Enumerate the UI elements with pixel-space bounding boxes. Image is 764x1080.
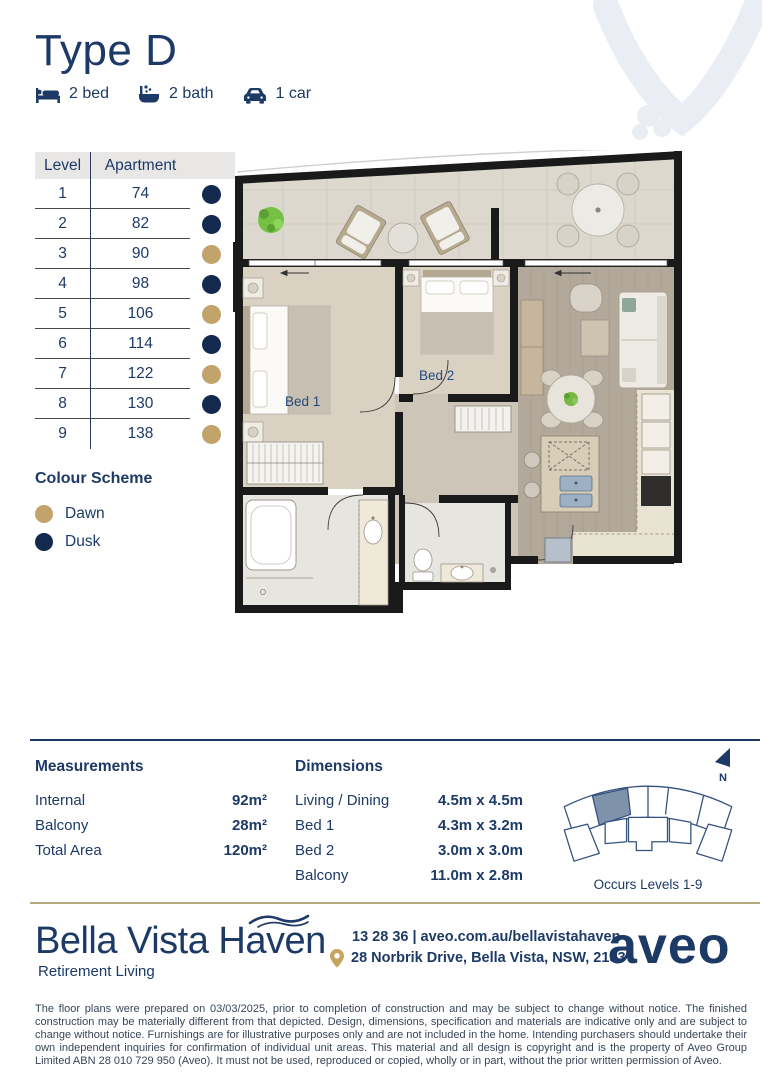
colour-scheme-title: Colour Scheme	[35, 470, 152, 488]
scheme-dot	[202, 275, 221, 294]
level-header: Level	[35, 152, 90, 179]
floor-plan: Bed 1 Bed 2	[233, 150, 684, 628]
measurement-label: Total Area	[35, 838, 102, 863]
address-line: 28 Norbrik Drive, Bella Vista, NSW, 2153	[330, 947, 626, 969]
scheme-dot	[202, 335, 221, 354]
dimension-value: 4.3m x 3.2m	[438, 813, 523, 838]
dimension-row: Bed 14.3m x 3.2m	[295, 813, 523, 838]
feature-baths-label: 2 bath	[169, 85, 213, 103]
apartment-cell: 114	[90, 329, 190, 359]
table-row: 498	[35, 269, 235, 299]
apartment-cell: 98	[90, 269, 190, 299]
feature-beds: 2 bed	[35, 85, 109, 104]
dimension-label: Bed 2	[295, 838, 334, 863]
apartment-cell: 90	[90, 239, 190, 269]
level-cell: 9	[35, 419, 90, 449]
dimension-label: Balcony	[295, 863, 348, 888]
dimension-value: 4.5m x 4.5m	[438, 788, 523, 813]
level-cell: 7	[35, 359, 90, 389]
address-text: 28 Norbrik Drive, Bella Vista, NSW, 2153	[351, 947, 626, 969]
scheme-dot	[202, 305, 221, 324]
level-cell: 4	[35, 269, 90, 299]
measurement-value: 28m²	[232, 813, 267, 838]
level-cell: 3	[35, 239, 90, 269]
apartment-header: Apartment	[90, 152, 190, 179]
apartment-cell: 130	[90, 389, 190, 419]
level-cell: 8	[35, 389, 90, 419]
level-cell: 6	[35, 329, 90, 359]
brand-name: Bella Vista Haven	[35, 920, 326, 963]
feature-cars: 1 car	[242, 85, 312, 104]
apartment-cell: 106	[90, 299, 190, 329]
aveo-logo: aveo	[608, 916, 731, 976]
colour-scheme-legend: Colour Scheme Dawn Dusk	[35, 470, 152, 556]
table-row: 5106	[35, 299, 235, 329]
table-row: 282	[35, 209, 235, 239]
level-apartment-table: Level Apartment 174 282 390 498 5106 611…	[35, 152, 235, 449]
brand-tagline: Retirement Living	[38, 963, 155, 980]
dawn-label: Dawn	[65, 505, 105, 523]
north-indicator: N	[710, 748, 736, 783]
table-header-row: Level Apartment	[35, 152, 235, 179]
apartment-cell: 74	[90, 179, 190, 209]
scheme-dot	[202, 245, 221, 264]
dawn-dot	[35, 505, 53, 523]
feature-beds-label: 2 bed	[69, 85, 109, 103]
contact-block: 13 28 36 | aveo.com.au/bellavistahaven 2…	[330, 927, 626, 969]
legend-item-dusk: Dusk	[35, 528, 152, 556]
scheme-dot	[202, 395, 221, 414]
measurements-section: Measurements Internal92m² Balcony28m² To…	[35, 758, 267, 863]
dusk-dot	[35, 533, 53, 551]
feature-baths: 2 bath	[137, 84, 213, 104]
apartment-cell: 82	[90, 209, 190, 239]
disclaimer-text: The floor plans were prepared on 03/03/2…	[35, 1003, 747, 1068]
divider-gold	[30, 902, 760, 904]
dimension-value: 3.0m x 3.0m	[438, 838, 523, 863]
table-row: 6114	[35, 329, 235, 359]
dimension-row: Balcony11.0m x 2.8m	[295, 863, 523, 888]
table-row: 8130	[35, 389, 235, 419]
measurement-row: Balcony28m²	[35, 813, 267, 838]
dusk-label: Dusk	[65, 533, 100, 551]
table-row: 9138	[35, 419, 235, 449]
bed2-label: Bed 2	[419, 368, 454, 383]
phone-and-web: 13 28 36 | aveo.com.au/bellavistahaven	[352, 927, 626, 947]
scheme-dot	[202, 215, 221, 234]
measurement-row: Internal92m²	[35, 788, 267, 813]
location-pin-icon	[330, 949, 344, 968]
level-cell: 2	[35, 209, 90, 239]
dimension-label: Living / Dining	[295, 788, 389, 813]
bed-icon	[35, 85, 61, 104]
apartment-cell: 138	[90, 419, 190, 449]
divider-navy	[30, 739, 760, 741]
table-row: 390	[35, 239, 235, 269]
dimension-row: Bed 23.0m x 3.0m	[295, 838, 523, 863]
table-row: 7122	[35, 359, 235, 389]
dimensions-section: Dimensions Living / Dining4.5m x 4.5m Be…	[295, 758, 523, 888]
measurements-title: Measurements	[35, 758, 267, 776]
level-cell: 5	[35, 299, 90, 329]
car-icon	[242, 85, 268, 104]
scheme-dot	[202, 185, 221, 204]
apartment-cell: 122	[90, 359, 190, 389]
bed1-furniture	[243, 278, 330, 484]
table-row: 174	[35, 179, 235, 209]
legend-item-dawn: Dawn	[35, 500, 152, 528]
dimension-label: Bed 1	[295, 813, 334, 838]
scheme-dot	[202, 365, 221, 384]
key-plan-caption: Occurs Levels 1-9	[548, 877, 748, 892]
page-title: Type D	[35, 26, 177, 76]
dimension-row: Living / Dining4.5m x 4.5m	[295, 788, 523, 813]
north-arrow-icon	[714, 748, 732, 768]
measurement-row: Total Area120m²	[35, 838, 267, 863]
measurement-value: 120m²	[224, 838, 267, 863]
scheme-dot	[202, 425, 221, 444]
level-cell: 1	[35, 179, 90, 209]
measurement-value: 92m²	[232, 788, 267, 813]
leaf-ornament-watermark	[588, 0, 762, 160]
north-label: N	[710, 773, 736, 783]
feature-list: 2 bed 2 bath 1 car	[35, 84, 311, 104]
dimension-value: 11.0m x 2.8m	[430, 863, 523, 888]
bath-icon	[137, 84, 161, 104]
feature-cars-label: 1 car	[276, 85, 312, 103]
bed1-label: Bed 1	[285, 394, 320, 409]
dimensions-title: Dimensions	[295, 758, 523, 776]
linen-cupboard	[455, 406, 511, 432]
measurement-label: Balcony	[35, 813, 88, 838]
measurement-label: Internal	[35, 788, 85, 813]
